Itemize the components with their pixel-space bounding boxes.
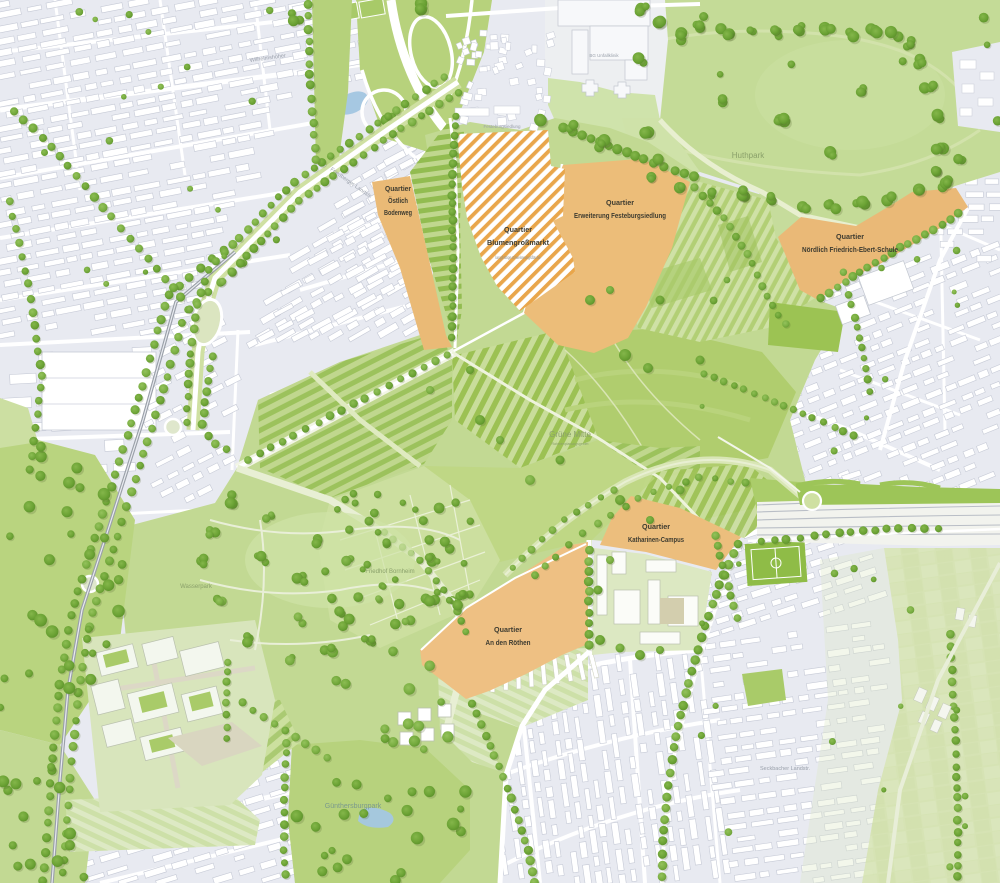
svg-text:Huthpark: Huthpark: [732, 151, 765, 160]
svg-text:Östlich: Östlich: [388, 196, 408, 205]
svg-text:Quartier: Quartier: [836, 232, 864, 241]
svg-text:Wasserpark: Wasserpark: [180, 584, 213, 590]
svg-text:langfristige Erweiterungsfläch: langfristige Erweiterungsfläche: [496, 255, 541, 260]
svg-text:Günthersburgpark: Günthersburgpark: [325, 803, 382, 810]
svg-text:Friedhof Bornheim: Friedhof Bornheim: [365, 569, 414, 575]
svg-text:Quartier: Quartier: [504, 225, 532, 234]
svg-text:Katharinen-Campus: Katharinen-Campus: [628, 535, 684, 544]
svg-text:Quartier: Quartier: [494, 625, 522, 634]
svg-text:Quartier: Quartier: [606, 198, 634, 207]
svg-text:An den Röthen: An den Röthen: [486, 638, 531, 647]
svg-text:Bodenweg: Bodenweg: [384, 210, 412, 217]
svg-text:Grüne Mitte: Grüne Mitte: [549, 430, 591, 439]
svg-text:BG Unfallklinik: BG Unfallklinik: [589, 53, 619, 58]
svg-text:Erweiterung Festeburgsiedlung: Erweiterung Festeburgsiedlung: [574, 211, 666, 220]
svg-text:Seckbacher Landstr.: Seckbacher Landstr.: [760, 766, 811, 772]
svg-text:Quartier: Quartier: [385, 186, 411, 193]
svg-text:Rahmenplanungsgebiet: Rahmenplanungsgebiet: [552, 442, 589, 446]
svg-text:Nördlich Friedrich-Ebert-Schul: Nördlich Friedrich-Ebert-Schule: [802, 245, 898, 254]
svg-text:Festeburgsiedlung: Festeburgsiedlung: [483, 124, 521, 129]
svg-text:Blumengroßmarkt: Blumengroßmarkt: [487, 238, 549, 247]
svg-text:Quartier: Quartier: [642, 522, 670, 531]
